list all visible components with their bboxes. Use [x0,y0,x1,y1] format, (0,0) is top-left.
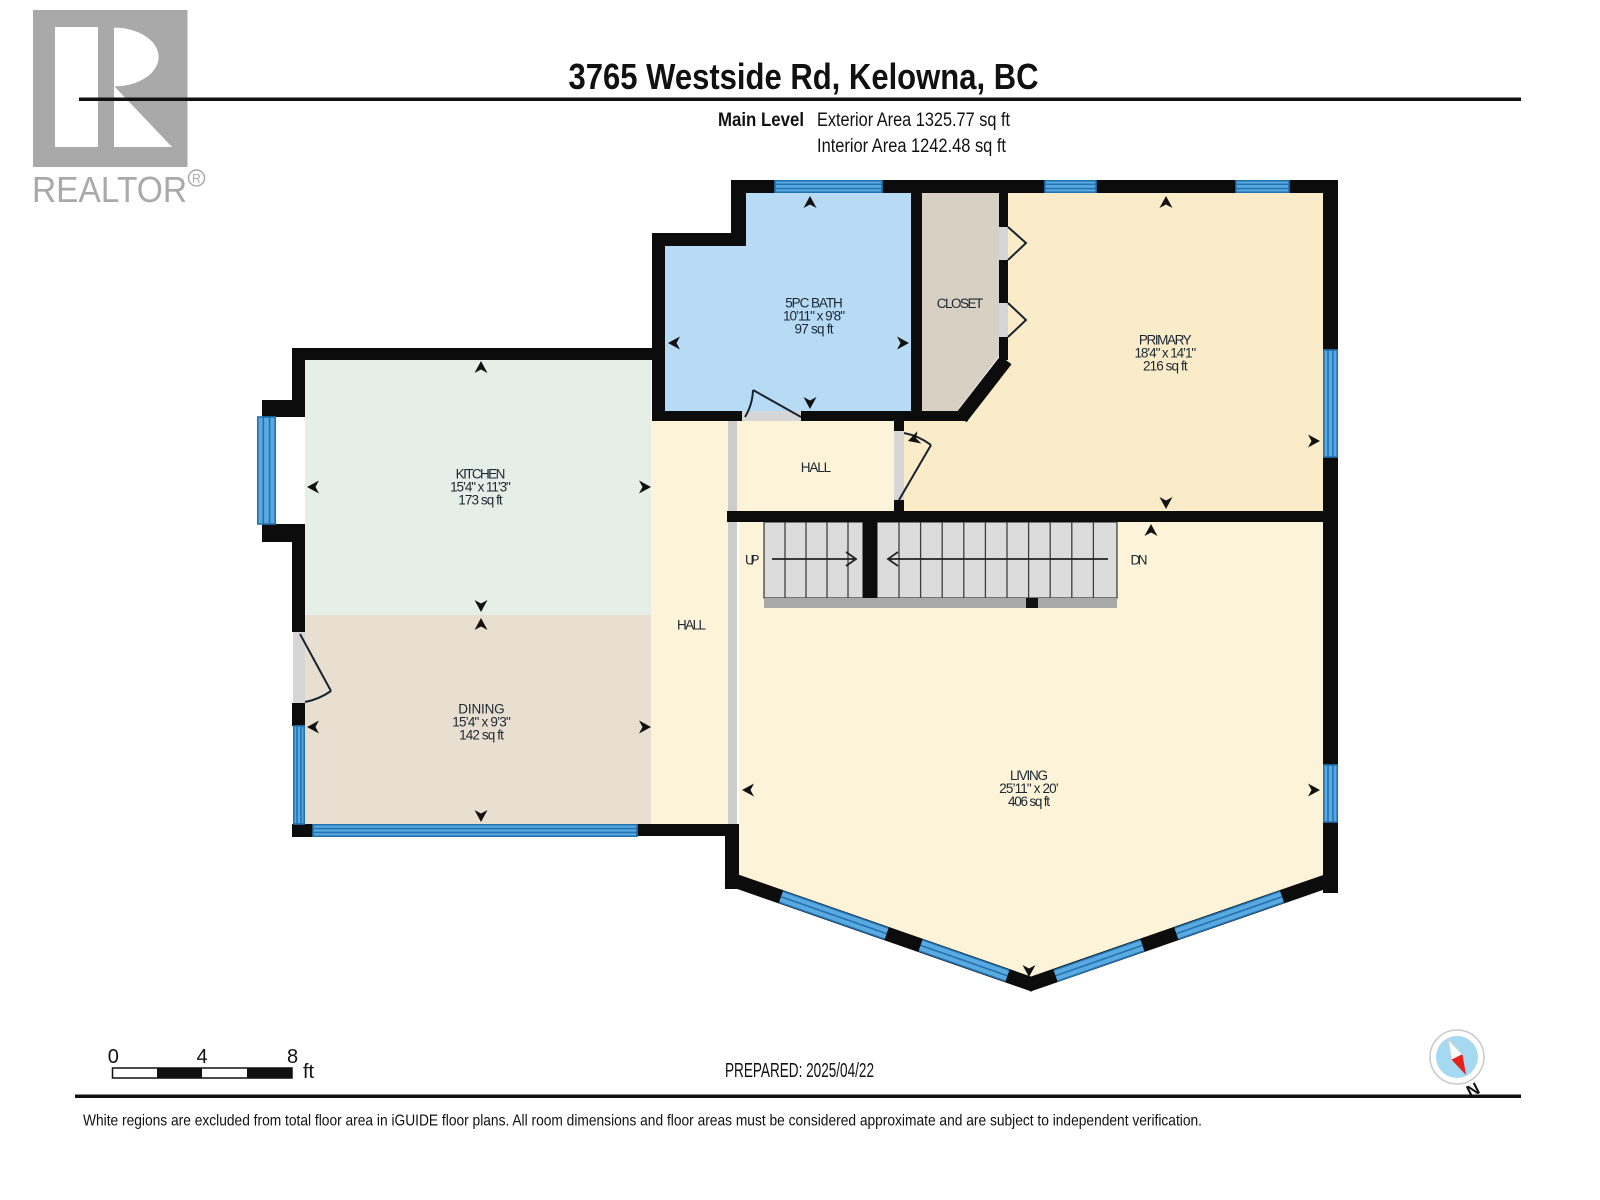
svg-text:142 sq ft: 142 sq ft [459,727,504,742]
svg-text:PREPARED: 2025/04/22: PREPARED: 2025/04/22 [725,1060,874,1082]
svg-text:DN: DN [1131,552,1148,567]
svg-text:REALTOR: REALTOR [32,169,187,210]
svg-text:White regions are excluded fro: White regions are excluded from total fl… [83,1113,1202,1130]
svg-text:173 sq ft: 173 sq ft [458,493,503,508]
svg-text:HALL: HALL [677,618,706,633]
svg-text:R: R [192,172,201,186]
svg-text:Exterior Area 1325.77 sq ft: Exterior Area 1325.77 sq ft [817,110,1011,131]
svg-text:CLOSET: CLOSET [937,296,984,311]
svg-text:ft: ft [303,1061,315,1083]
svg-text:216 sq ft: 216 sq ft [1143,359,1188,374]
svg-text:UP: UP [745,552,760,567]
svg-text:406 sq ft: 406 sq ft [1008,794,1050,809]
svg-text:Interior Area 1242.48 sq ft: Interior Area 1242.48 sq ft [817,136,1007,157]
svg-text:4: 4 [196,1046,207,1068]
svg-text:97 sq ft: 97 sq ft [795,321,834,336]
svg-text:3765 Westside Rd, Kelowna, BC: 3765 Westside Rd, Kelowna, BC [569,56,1039,97]
svg-text:Main Level: Main Level [718,110,804,131]
svg-text:8: 8 [287,1046,298,1068]
svg-text:HALL: HALL [801,460,832,475]
svg-text:0: 0 [108,1046,119,1068]
